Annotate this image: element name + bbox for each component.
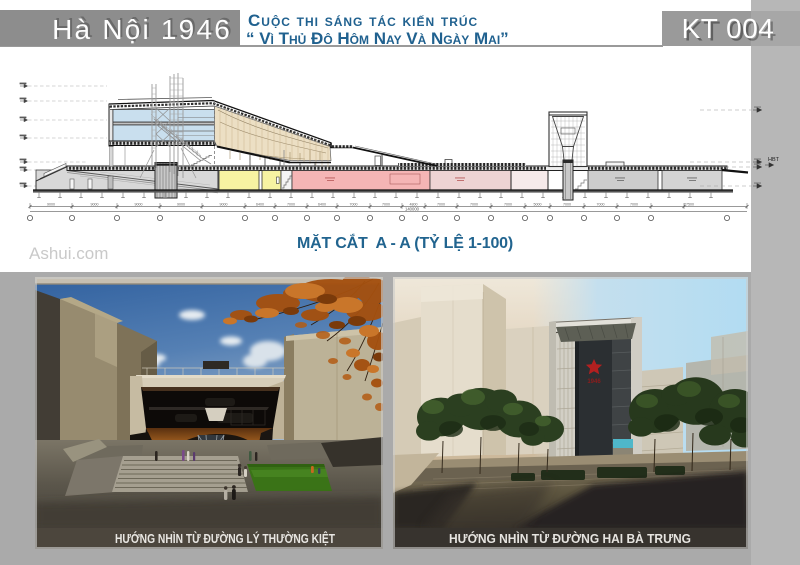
svg-text:9000: 9000 [47, 202, 55, 206]
svg-text:9000: 9000 [91, 202, 99, 206]
svg-text:HƯỚNG NHÌN TỪ ĐƯỜNG HAI BÀ TRƯ: HƯỚNG NHÌN TỪ ĐƯỜNG HAI BÀ TRƯNG [449, 531, 691, 546]
svg-text:9000: 9000 [177, 202, 185, 206]
svg-text:7000: 7000 [630, 202, 638, 206]
svg-text:7000: 7000 [287, 202, 295, 206]
svg-text:140000: 140000 [405, 207, 420, 212]
svg-text:7000: 7000 [437, 202, 445, 206]
svg-text:HBT: HBT [768, 157, 780, 163]
svg-text:7000: 7000 [504, 202, 512, 206]
svg-text:1946: 1946 [587, 379, 601, 385]
svg-text:9000: 9000 [220, 202, 228, 206]
svg-text:7000: 7000 [470, 202, 478, 206]
svg-text:7000: 7000 [563, 202, 571, 206]
svg-text:4800: 4800 [410, 202, 418, 206]
svg-text:HƯỚNG NHÌN TỪ ĐƯỜNG LÝ THƯỜNG: HƯỚNG NHÌN TỪ ĐƯỜNG LÝ THƯỜNG KIỆT [115, 531, 335, 546]
svg-text:7000: 7000 [382, 202, 390, 206]
svg-text:5000: 5000 [534, 202, 542, 206]
svg-text:7000: 7000 [350, 202, 358, 206]
svg-text:7000: 7000 [597, 202, 605, 206]
svg-text:27500: 27500 [684, 202, 694, 206]
svg-text:9000: 9000 [135, 202, 143, 206]
svg-text:6400: 6400 [318, 202, 326, 206]
svg-text:6400: 6400 [256, 202, 264, 206]
